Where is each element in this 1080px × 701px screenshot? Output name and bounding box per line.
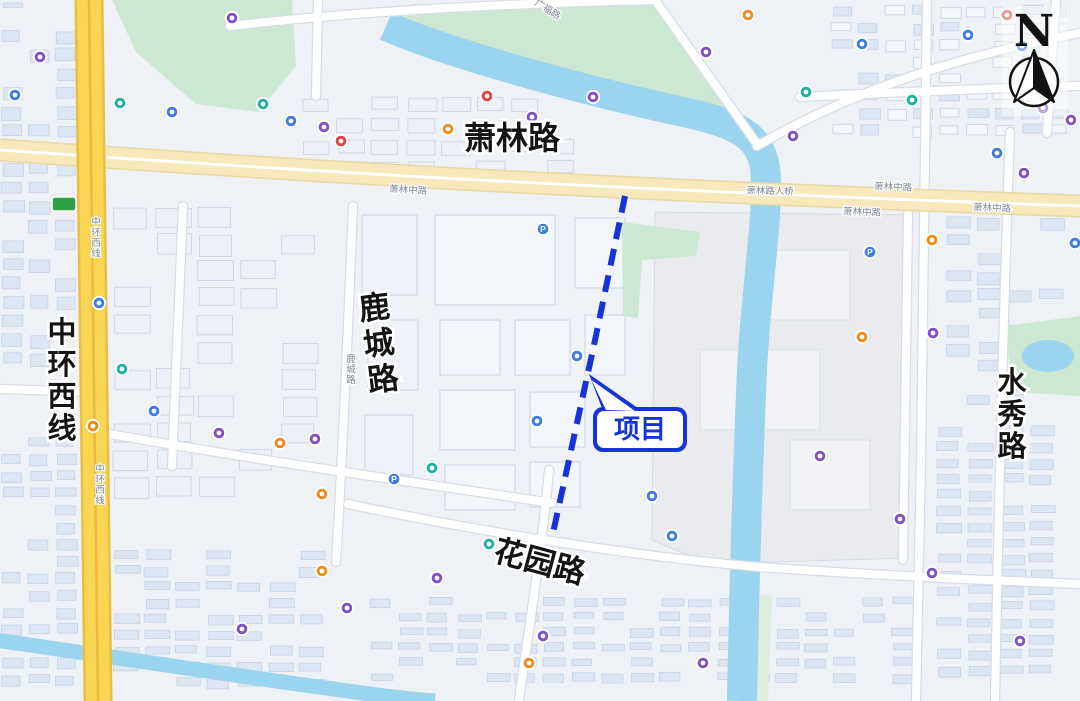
building-block [941,23,959,31]
building-block [998,649,1021,658]
building-block [28,540,48,550]
building-block [864,614,885,622]
building-block [690,614,710,621]
poi-marker-dot [217,431,222,436]
building-block [458,644,477,653]
major-road-label-char: 路 [366,360,402,399]
zhonghuan-highway [89,0,98,701]
building-block [689,627,710,636]
building-block [282,370,315,390]
building-block [968,109,989,118]
building-block [175,583,199,591]
building-block [198,343,232,364]
building-block [1030,476,1051,485]
building-block [238,583,260,591]
building-block [3,658,24,668]
poi-marker-dot [38,55,43,60]
north-compass: N [1002,6,1068,116]
building-block [56,32,75,44]
road-name-label: 中 [91,216,101,228]
building-block [967,619,989,627]
building-block [56,239,75,250]
building-block [58,127,79,137]
building-block [968,554,992,563]
building-block [208,616,233,626]
poi-marker-dot [591,95,596,100]
building-block [29,182,48,193]
building-block [56,572,75,583]
building-block [175,631,199,640]
road-name-label: 线 [95,495,105,507]
building-block [55,506,75,515]
building-block [299,663,321,671]
poi-marker-dot [240,627,245,632]
major-road-label-char: 线 [47,412,76,445]
building-block [57,609,75,619]
poi-marker-dot [535,419,540,424]
building-block [888,110,907,121]
building-block [269,615,294,623]
building-block [894,644,914,650]
poi-marker-glyph: P [540,224,546,234]
building-block [603,598,625,605]
building-block [408,118,435,133]
building-block [2,31,19,42]
building-block [777,642,799,649]
building-block [805,659,825,668]
poi-marker-dot [345,606,350,611]
major-road-label-char: 西 [47,381,76,413]
building-block [371,140,397,154]
building-block [937,506,961,515]
building-block [199,396,234,417]
building-block [512,99,538,112]
building-block [58,454,77,464]
building-block [175,646,197,653]
building-block [2,108,21,121]
building-block [573,673,595,681]
building-block [833,124,853,134]
building-block [459,615,482,622]
building-block [1031,537,1053,544]
building-block [662,599,684,606]
route-shield [52,197,76,211]
building-block [941,8,961,19]
building-block [56,676,74,685]
building-block [144,614,165,622]
building-block [283,343,318,363]
building-block [56,88,74,99]
poi-marker-dot [261,102,266,107]
building-block [939,554,961,562]
building-block [574,612,594,618]
building-block [400,658,423,666]
poi-marker-dot [791,134,796,139]
building-block [938,649,961,658]
building-block [978,219,1000,231]
road-name-label: 线 [91,248,101,260]
poi-marker-dot [313,437,318,442]
highway-shield-icon [52,197,76,211]
building-block [1,182,21,193]
building-block [57,540,78,551]
building-block [4,353,22,363]
building-block [176,600,199,608]
poi-marker-dot [898,517,903,522]
poi-marker-dot [966,33,971,38]
building-block [602,674,623,683]
building-block [207,551,231,559]
building-block [488,645,508,651]
building-block [115,566,140,574]
building-block [115,478,149,499]
building-block [58,471,75,480]
building-block [604,612,623,619]
building-block [30,592,49,602]
building-block [457,659,477,665]
building-block [271,646,293,655]
building-block [30,455,47,466]
building-block [198,260,234,280]
building-block [1032,506,1056,513]
major-road-label: 水秀路 [996,366,1027,463]
building-block [58,69,78,80]
poi-marker-dot [704,50,709,55]
building-block [284,398,317,417]
building-block [370,599,390,608]
road-name-label: 萧林中路 [389,183,428,197]
building-block [543,674,563,682]
building-block [301,615,323,624]
building-block [999,620,1021,629]
building-block [661,627,680,635]
building-block [29,260,50,273]
poi-marker-dot [485,94,490,99]
building-block [659,672,679,681]
poi-marker-dot [930,238,935,243]
building-block [58,590,76,600]
building-block [969,604,992,611]
building-block [30,202,50,214]
building-block [548,161,574,173]
building-block [966,8,985,17]
building-block [1031,444,1053,453]
poi-marker-dot [446,127,451,132]
building-block [946,344,969,356]
building-block [371,674,392,680]
poi-marker-glyph: P [391,474,397,484]
building-block [199,287,234,305]
building-block [2,573,20,583]
building-block [544,643,563,652]
building-block [4,259,23,270]
building-block [885,5,905,14]
building-block [831,23,851,31]
building-block [979,254,1003,265]
building-block [115,551,138,559]
building-block [947,271,971,281]
building-block [630,629,653,638]
building-block [29,125,49,136]
building-block [371,118,399,130]
poi-marker-dot [930,571,935,576]
building-block [937,442,958,451]
poi-marker-dot [170,110,175,115]
building-block [115,287,151,306]
road-name-label: 鹿 [346,353,356,365]
building-block [858,24,877,33]
building-block [207,566,229,575]
building-block [937,524,962,533]
building-block [56,220,74,231]
building-block [399,643,420,649]
poi-marker-dot [120,367,125,372]
building-block [1000,539,1024,547]
building-block [147,550,171,560]
building-block [777,598,800,606]
building-block [1039,289,1063,298]
building-block [967,125,988,135]
building-block [198,208,230,228]
building-block [937,618,961,625]
building-block [1031,426,1054,436]
building-block [947,235,969,245]
building-block [968,508,991,515]
building-block [632,674,654,682]
building-block [860,109,881,119]
building-block [115,630,139,639]
poi-marker-dot [804,90,809,95]
building-block [4,201,25,212]
building-block [114,208,147,229]
building-block [58,107,78,120]
poi-marker-dot [487,542,492,547]
poi-marker-dot [430,466,435,471]
building-block [939,428,962,437]
building-block [31,296,48,309]
building-block [29,625,49,634]
building-block [209,631,233,639]
building-block [487,613,506,619]
road-name-label: 萧林中路 [874,180,913,193]
building-block [969,492,991,501]
building-block [199,236,231,257]
building-block [572,659,591,665]
poi-marker-dot [995,151,1000,156]
building-block [937,489,960,498]
building-block [29,221,47,234]
poi-marker-dot [575,354,580,359]
road-name-label: 环 [91,228,101,239]
building-block [2,455,20,464]
building-block [543,597,564,605]
building-block [543,658,565,666]
poi-marker-dot [91,424,96,429]
building-block [689,643,710,652]
building-block [979,309,1002,318]
building-block [487,674,510,682]
building-block [31,658,49,668]
building-block [4,297,24,309]
building-block [177,678,200,686]
building-block [1030,601,1054,610]
building-block [4,609,24,618]
building-block [282,236,315,254]
building-block [145,581,170,589]
building-block [894,657,914,665]
major-road-label-char: 路 [997,430,1027,463]
building-block [891,628,913,635]
building-block [58,658,76,669]
poi-marker-dot [530,115,535,120]
building-block [55,279,75,292]
building-block [832,40,853,48]
building-block [443,98,471,112]
poi-marker-dot [931,331,936,336]
building-block [1009,291,1031,302]
building-block [938,588,960,596]
building-block [207,647,231,657]
building-block [299,647,323,657]
building-block [57,297,75,309]
poi-marker-dot [910,98,915,103]
poi-marker-dot [97,301,102,306]
poi-marker-dot [860,42,865,47]
building-block [947,217,970,228]
road-name-label: 萧林中路 [973,201,1012,214]
building-block [3,164,23,177]
major-road-label: 中环西线 [47,316,76,445]
building-block [941,108,959,117]
major-road-label-char: 水 [997,366,1027,399]
building-block [937,460,958,468]
building-block [430,597,452,604]
building-block [31,488,49,497]
building-block [207,581,232,589]
building-block [940,40,959,50]
building-block [660,612,680,620]
road-name-label: 萧林路人桥 [746,185,794,198]
building-block [2,473,22,483]
poi-marker-dot [1073,241,1078,246]
building-block [632,658,653,666]
poi-marker-dot [278,441,283,446]
building-block [968,586,992,594]
building-block [147,600,169,609]
building-block [1001,666,1024,673]
road-name-label: 西 [95,485,105,496]
project-callout-label: 项目 [614,414,666,444]
building-block [1029,665,1050,673]
poi-marker-dot [650,494,655,499]
road-name-label: 环 [95,475,105,486]
poi-marker-dot [1069,118,1074,123]
building-block [241,289,277,308]
poi-marker-dot [320,569,325,574]
building-block [372,97,397,109]
road-name-label: 萧林中路 [843,205,882,218]
poi-marker-dot [860,335,865,340]
major-road-label-char: 中 [47,316,76,349]
building-block [3,241,24,253]
building-block [863,598,882,606]
major-road-label-char: 环 [47,349,76,381]
building-block [999,601,1022,608]
building-block [269,599,294,608]
building-block [145,630,170,638]
building-block [947,291,971,302]
building-block [968,444,993,451]
building-block [3,3,22,7]
building-block [1001,556,1025,565]
building-block [1030,620,1053,628]
building-block [427,628,446,635]
building-block [978,289,1000,300]
building-block [409,98,437,111]
poi-marker-dot [289,119,294,124]
poi-marker-dot [152,409,157,414]
building-block [144,568,168,577]
building-block [940,74,961,83]
building-block [968,540,991,547]
building-block [400,628,423,635]
building-block [337,119,363,133]
major-road-label-char: 鹿 [357,289,392,328]
pond [1022,340,1074,372]
poi-marker-dot [527,661,532,666]
building-block [969,635,992,643]
building-block [146,647,170,654]
poi-marker-dot [746,13,751,18]
building-block [861,125,879,135]
building-block [969,666,993,675]
poi-marker-dot [701,661,706,666]
road-name-label: 西 [91,238,101,249]
building-block [58,624,78,634]
building-block [969,460,992,469]
building-block [2,315,23,326]
building-block [859,73,878,84]
building-block [29,438,49,446]
building-block [834,657,855,665]
poi-marker-dot [541,634,546,639]
building-block [115,315,151,333]
building-block [1001,522,1025,530]
poi-marker-dot [118,101,123,106]
building-block [55,48,75,61]
map-viewport[interactable]: 萧林中路萧林路人桥萧林中路萧林中路萧林中路广福路鹿城路中环西线中环西线 PPP … [0,0,1080,701]
building-block [2,676,20,686]
major-road-label-char: 秀 [996,398,1026,431]
building-block [459,630,481,638]
building-block [688,600,711,607]
building-block [969,475,991,482]
building-block [1030,521,1052,530]
building-block [1029,649,1052,656]
building-block [939,667,961,677]
building-block [1030,460,1053,470]
building-block [940,126,958,134]
building-block [777,629,798,638]
building-block [969,651,992,660]
building-block [805,644,828,652]
building-block [200,477,235,496]
building-block [544,613,563,621]
building-block [241,260,275,278]
road-name-label: 城 [346,365,356,376]
building-block [1029,553,1052,561]
building-block [270,583,295,592]
